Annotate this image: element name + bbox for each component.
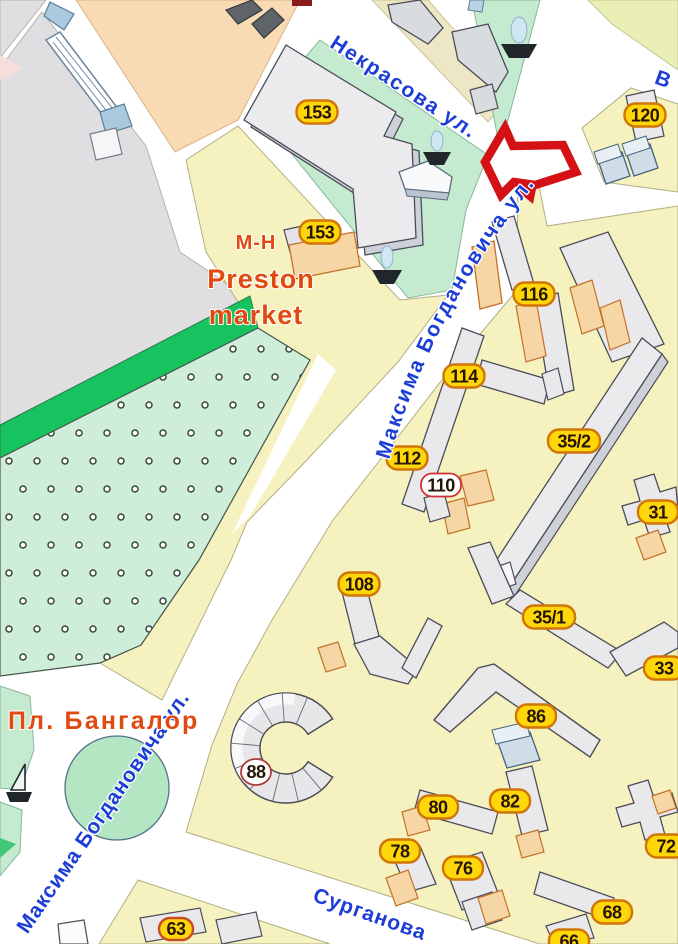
svg-text:63: 63 — [166, 919, 186, 939]
svg-text:112: 112 — [393, 449, 421, 469]
svg-text:33: 33 — [654, 659, 674, 679]
svg-text:116: 116 — [520, 285, 548, 305]
svg-text:31: 31 — [648, 503, 668, 523]
svg-text:78: 78 — [390, 842, 410, 862]
svg-text:76: 76 — [453, 859, 473, 879]
svg-text:86: 86 — [526, 707, 546, 727]
svg-text:153: 153 — [306, 223, 335, 243]
svg-text:110: 110 — [427, 476, 455, 496]
svg-text:Preston: Preston — [207, 264, 315, 294]
svg-text:35/1: 35/1 — [532, 608, 566, 628]
svg-text:market: market — [209, 300, 304, 330]
svg-text:120: 120 — [631, 106, 660, 126]
svg-text:72: 72 — [656, 837, 676, 857]
svg-text:114: 114 — [450, 367, 478, 387]
svg-text:66: 66 — [559, 932, 579, 944]
svg-text:68: 68 — [602, 903, 622, 923]
svg-text:108: 108 — [345, 575, 374, 595]
svg-text:88: 88 — [246, 762, 266, 782]
svg-text:80: 80 — [428, 798, 448, 818]
svg-text:Пл. Бангалор: Пл. Бангалор — [8, 707, 200, 735]
svg-text:82: 82 — [500, 792, 520, 812]
svg-text:М-Н: М-Н — [236, 232, 277, 254]
svg-text:153: 153 — [303, 103, 332, 123]
svg-text:35/2: 35/2 — [557, 432, 591, 452]
